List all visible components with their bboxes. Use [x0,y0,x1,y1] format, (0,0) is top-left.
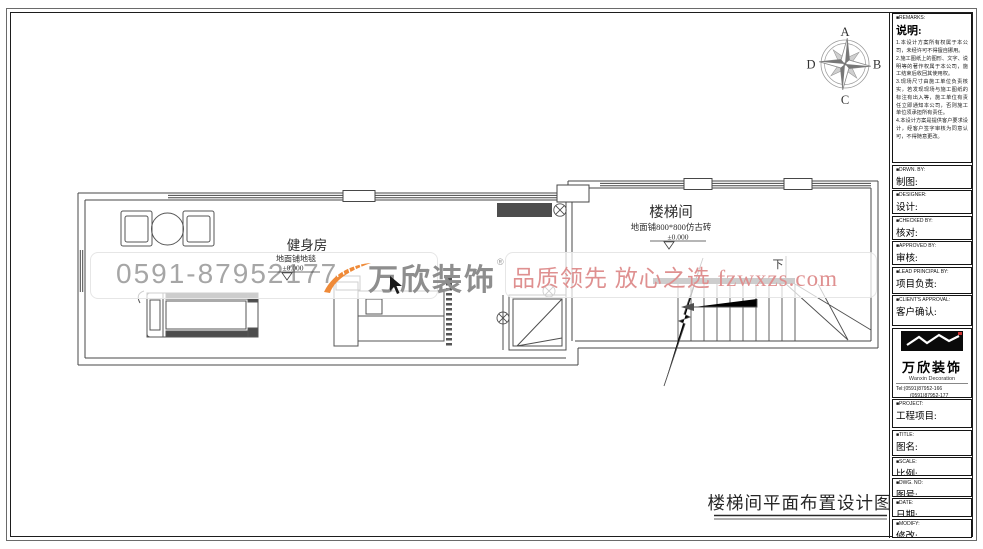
company-tel1: Tel:(0591)87952-166 [896,386,968,394]
client-approval-zh-label: 客户确认: [896,304,968,318]
titleblock-dwg-no: ■DWG. NO: 图号: [892,478,972,497]
date-zh-label: 日期: [896,507,968,517]
date-en-label: ■DATE: [896,500,968,506]
checked-by-en-label: ■CHECKED BY: [896,218,968,224]
designer-en-label: ■DESIGNER: [896,192,968,198]
watermark-swoosh-icon [322,262,372,294]
client-approval-en-label: ■CLIENT'S APPROVAL: [896,297,968,303]
project-en-label: ■PROJECT: [896,401,968,407]
watermark-layer: 0591-87952177 万欣装饰 ® 品质领先 放心之选 fzwxzs.co… [0,0,983,549]
titleblock-scale: ■SCALE: 比例: [892,457,972,476]
title-zh-label: 图名: [896,439,968,453]
company-brand: 万欣装饰 [896,357,968,376]
project-zh-label: 工程项目: [896,408,968,422]
lead-principal-zh-label: 项目负责: [896,276,968,290]
titleblock-company: 万欣装饰 Wanxin Decoration Tel:(0591)87952-1… [892,328,972,398]
drwn-by-zh-label: 制图: [896,174,968,188]
watermark-phone: 0591-87952177 [116,258,338,290]
remarks-zh-label: 说明: [896,22,968,38]
modify-zh-label: 修改: [896,528,968,538]
title-en-label: ■TITLE: [896,432,968,438]
dwg-no-en-label: ■DWG. NO: [896,480,968,486]
company-name-en: Wanxin Decoration [896,376,968,384]
remarks-body: 1.本设计方案所有权属于本公司，未经许可不得擅自挪用。 2.施工图纸上的图形、文… [896,40,968,141]
titleblock-project: ■PROJECT: 工程项目: [892,399,972,428]
titleblock-title: ■TITLE: 图名: [892,430,972,456]
title-block: ■REMARKS: 说明: 1.本设计方案所有权属于本公司，未经许可不得擅自挪用… [891,13,973,537]
company-logo-icon [901,331,963,351]
drawing-sheet: 0591-87952177 万欣装饰 ® 品质领先 放心之选 fzwxzs.co… [0,0,983,549]
watermark-brand: 万欣装饰 [368,255,496,299]
scale-zh-label: 比例: [896,466,968,476]
modify-en-label: ■MODIFY: [896,521,968,527]
titleblock-modify: ■MODIFY: 修改: [892,519,972,538]
titleblock-checked-by: ■CHECKED BY: 核对: [892,216,972,240]
drwn-by-en-label: ■DRWN. BY: [896,167,968,173]
remarks-en-label: ■REMARKS: [896,15,968,21]
approved-by-en-label: ■APPROVED BY: [896,243,968,249]
scale-en-label: ■SCALE: [896,459,968,465]
titleblock-remarks: ■REMARKS: 说明: 1.本设计方案所有权属于本公司，未经许可不得擅自挪用… [892,13,972,163]
lead-principal-en-label: ■LEAD PRINCIPAL BY: [896,269,968,275]
watermark-slogan: 品质领先 放心之选 fzwxzs.com [512,259,838,293]
checked-by-zh-label: 核对: [896,225,968,239]
titleblock-designer: ■DESIGNER: 设计: [892,190,972,214]
designer-zh-label: 设计: [896,199,968,213]
approved-by-zh-label: 审核: [896,250,968,264]
watermark-trademark: ® [497,257,504,267]
titleblock-client-approval: ■CLIENT'S APPROVAL: 客户确认: [892,295,972,326]
titleblock-approved-by: ■APPROVED BY: 审核: [892,241,972,265]
titleblock-lead-principal: ■LEAD PRINCIPAL BY: 项目负责: [892,267,972,294]
dwg-no-zh-label: 图号: [896,487,968,497]
titleblock-drwn-by: ■DRWN. BY: 制图: [892,165,972,189]
titleblock-date: ■DATE: 日期: [892,498,972,517]
company-tel2: (0591)87952-177 [896,393,968,398]
